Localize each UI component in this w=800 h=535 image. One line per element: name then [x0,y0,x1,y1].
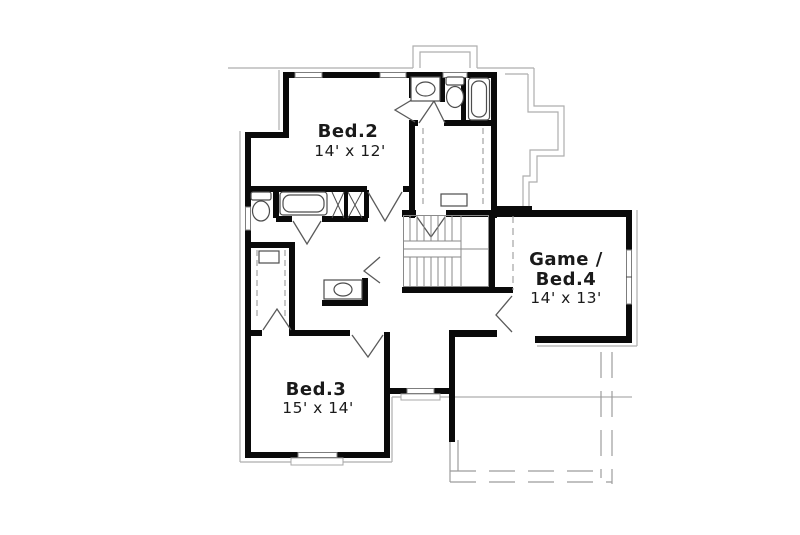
room-label-game-line2: Bed.4 [536,269,597,290]
stair-outline [404,216,489,287]
window-sill [291,458,343,465]
wall [289,242,295,336]
door-hall-bath [293,221,321,244]
wall [337,452,390,458]
wall [440,76,445,102]
window [246,207,251,230]
sink-basin-icon [334,283,352,296]
door-bed2-entry [368,192,402,221]
wall [245,242,295,248]
wall [283,72,289,138]
linen-closet-x [332,192,344,218]
room-label-bed3-dims: 15' x 14' [282,399,354,417]
door-bath2-inner [419,101,445,123]
floor-plan-page: Bed.2 14' x 12' Game / Bed.4 14' x 13' B… [0,0,800,535]
dormer-outline-inner [420,52,470,68]
wall [384,388,407,394]
toilet-tank-icon [251,192,271,200]
porch-dashed-outline [450,352,612,484]
wall [245,186,367,192]
room-label-bed2-name: Bed.2 [318,121,379,142]
wall [322,72,380,78]
wall [402,287,513,293]
linen-closet-x [348,192,362,218]
wall [322,300,368,306]
room-label-game-dims: 14' x 13' [530,289,602,307]
wall [245,452,298,458]
closet-shelf [259,251,279,263]
window [295,73,322,78]
window [407,389,434,394]
wall [273,190,279,218]
wall [292,330,350,336]
sink-basin-icon [416,82,435,96]
wall [491,72,497,218]
wall [444,120,497,126]
door-game-entry [496,296,512,332]
room-label-game-line1: Game / [529,249,603,270]
toilet-bowl-icon [447,87,464,108]
toilet-tank-icon [446,77,464,85]
door-swing-layer [263,98,512,357]
floor-plan-canvas: Bed.2 14' x 12' Game / Bed.4 14' x 13' B… [0,0,800,535]
roof-step-right-2 [529,68,564,209]
wall [344,190,348,218]
window [298,453,337,458]
door-closet-bed3 [263,309,291,330]
window [380,73,406,78]
staircase [404,216,489,287]
wall [409,126,415,218]
window-sill [401,394,440,400]
wall [245,132,289,138]
wall [245,330,262,336]
wall [493,206,532,212]
wall [276,216,292,222]
wall [384,332,390,458]
dormer-outline-outer [413,46,477,68]
bathtub-basin-icon [472,81,487,117]
stair-treads-lower [410,257,452,287]
wall [245,132,251,207]
room-labels: Bed.2 14' x 12' Game / Bed.4 14' x 13' B… [282,121,603,417]
room-label-bed2-dims: 14' x 12' [314,142,386,160]
bathtub-basin-icon [283,195,324,212]
wall [364,190,369,218]
wall [245,230,251,458]
roof-step-right-1 [523,74,558,209]
room-label-bed3-name: Bed.3 [286,379,347,400]
stair-landing [404,241,489,257]
wall [535,336,632,343]
wall [434,388,455,394]
stair-treads-upper [410,216,452,242]
wall [626,210,632,250]
door-bed3-entry [352,335,383,357]
wall [449,330,455,442]
wall [489,210,495,293]
toilet-bowl-icon [253,201,270,221]
closet-shelf [441,194,467,206]
wall [453,330,497,337]
